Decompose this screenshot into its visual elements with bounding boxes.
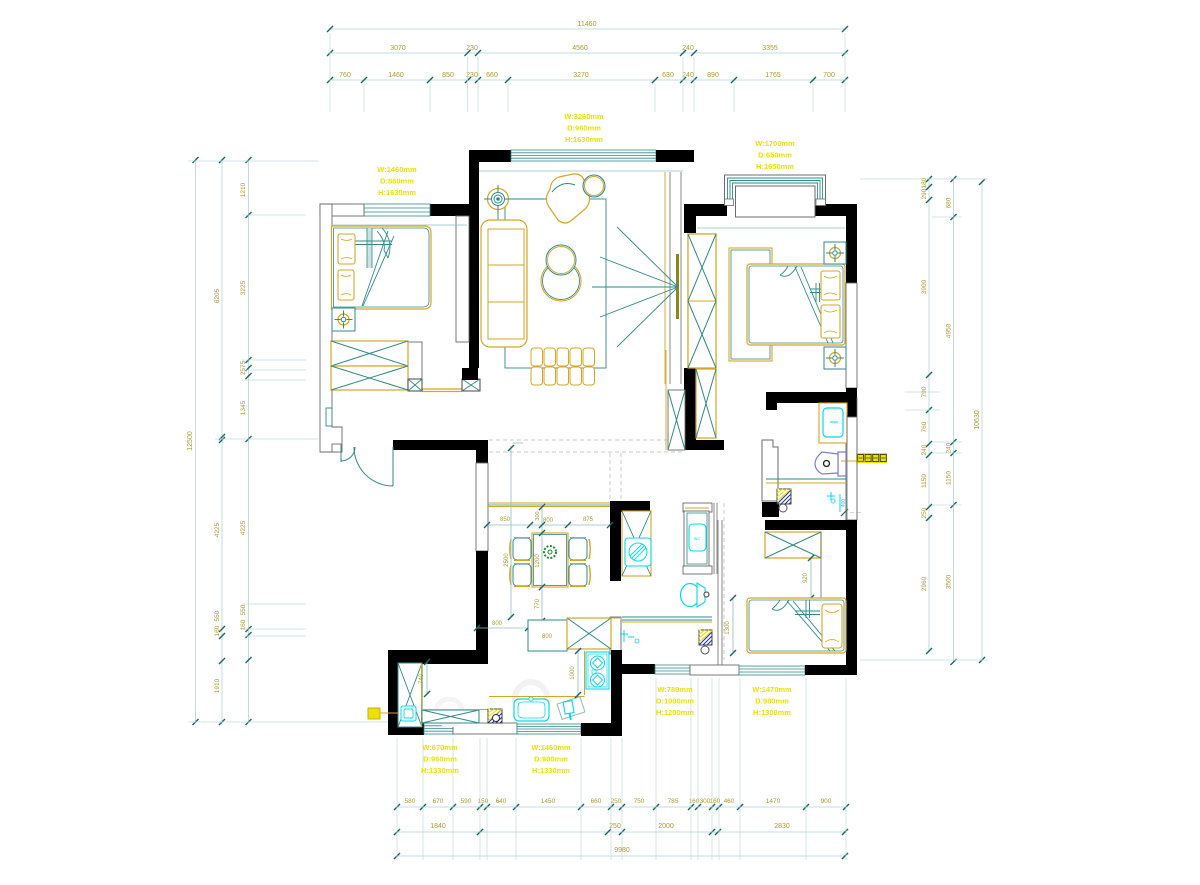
svg-text:H:1200mm: H:1200mm [656, 708, 694, 717]
svg-text:160: 160 [214, 625, 221, 636]
svg-text:630: 630 [662, 72, 674, 79]
svg-text:590: 590 [461, 798, 472, 805]
svg-text:660: 660 [486, 72, 498, 79]
svg-text:D:1000mm: D:1000mm [656, 697, 694, 706]
svg-text:875: 875 [583, 517, 594, 523]
svg-text:3225: 3225 [240, 280, 247, 295]
svg-text:1470: 1470 [766, 798, 781, 805]
svg-text:785: 785 [668, 798, 679, 805]
svg-text:W:670mm: W:670mm [422, 743, 458, 752]
svg-text:4560: 4560 [572, 45, 588, 52]
svg-text:W:1700mm: W:1700mm [755, 139, 795, 148]
svg-text:1460: 1460 [388, 72, 404, 79]
svg-text:W:1460mm: W:1460mm [531, 743, 571, 752]
svg-text:1765: 1765 [765, 72, 781, 79]
svg-text:290: 290 [921, 188, 928, 199]
svg-text:300: 300 [535, 511, 541, 520]
svg-text:770: 770 [535, 598, 541, 609]
svg-text:D:980mm: D:980mm [755, 697, 789, 706]
svg-text:700: 700 [823, 72, 835, 79]
svg-text:W:1460mm: W:1460mm [377, 165, 417, 174]
svg-text:660: 660 [591, 798, 602, 805]
svg-text:10630: 10630 [974, 410, 981, 430]
svg-text:250: 250 [611, 798, 622, 805]
svg-text:1000: 1000 [570, 666, 576, 680]
svg-text:850: 850 [500, 517, 511, 523]
svg-text:240: 240 [946, 442, 953, 453]
svg-text:H:1300mm: H:1300mm [753, 708, 791, 717]
svg-text:1840: 1840 [430, 823, 446, 830]
svg-text:4225: 4225 [214, 522, 221, 537]
svg-text:2500: 2500 [504, 553, 510, 567]
svg-text:1300: 1300 [725, 621, 731, 635]
svg-text:230: 230 [466, 45, 478, 52]
svg-text:W:780mm: W:780mm [657, 685, 693, 694]
svg-text:800: 800 [542, 634, 553, 640]
svg-text:240: 240 [921, 444, 928, 455]
svg-text:4225: 4225 [240, 520, 247, 535]
svg-text:D:960mm: D:960mm [567, 124, 601, 133]
svg-text:3270: 3270 [573, 72, 589, 79]
svg-text:W:1470mm: W:1470mm [752, 685, 792, 694]
svg-text:680: 680 [946, 197, 953, 208]
svg-text:W:3260mm: W:3260mm [564, 112, 604, 121]
svg-text:3355: 3355 [762, 45, 778, 52]
svg-text:400: 400 [841, 499, 847, 508]
svg-text:1210: 1210 [240, 182, 247, 197]
svg-text:230: 230 [466, 72, 478, 79]
svg-text:250: 250 [921, 507, 928, 518]
svg-text:2830: 2830 [774, 823, 790, 830]
svg-text:580: 580 [405, 798, 416, 805]
svg-text:4950: 4950 [946, 323, 953, 338]
svg-text:850: 850 [442, 72, 454, 79]
svg-text:1150: 1150 [921, 474, 928, 488]
svg-text:240: 240 [682, 45, 694, 52]
svg-text:3900: 3900 [921, 279, 928, 294]
svg-text:WC: WC [694, 536, 701, 541]
svg-text:3070: 3070 [390, 45, 406, 52]
svg-text:D:650mm: D:650mm [758, 151, 792, 160]
svg-text:890: 890 [707, 72, 719, 79]
svg-text:D:860mm: D:860mm [380, 177, 414, 186]
svg-text:D:960mm: D:960mm [423, 755, 457, 764]
svg-text:1200: 1200 [535, 554, 541, 568]
svg-text:740: 740 [419, 673, 425, 684]
svg-text:H:1650mm: H:1650mm [756, 162, 794, 171]
svg-text:760: 760 [339, 72, 351, 79]
svg-text:12500: 12500 [187, 431, 194, 451]
svg-text:800: 800 [492, 621, 503, 627]
svg-text:2960: 2960 [921, 576, 928, 591]
svg-text:H:1330mm: H:1330mm [421, 766, 459, 775]
svg-text:920: 920 [803, 572, 809, 583]
svg-text:550: 550 [240, 604, 247, 615]
svg-text:1910: 1910 [214, 678, 221, 693]
svg-text:1450: 1450 [541, 798, 556, 805]
svg-text:6205: 6205 [214, 288, 221, 303]
svg-text:1345: 1345 [240, 400, 247, 415]
svg-text:11460: 11460 [578, 21, 597, 28]
svg-text:460: 460 [724, 798, 735, 805]
svg-text:3500: 3500 [946, 574, 953, 589]
svg-text:670: 670 [433, 798, 444, 805]
svg-text:240: 240 [682, 72, 694, 79]
svg-text:640: 640 [496, 798, 507, 805]
svg-text:2000: 2000 [658, 823, 674, 830]
svg-text:D:900mm: D:900mm [534, 755, 568, 764]
svg-text:2575: 2575 [240, 360, 247, 375]
svg-text:H:1330mm: H:1330mm [532, 766, 570, 775]
svg-text:550: 550 [214, 610, 221, 621]
svg-text:750: 750 [634, 798, 645, 805]
svg-text:H:1630mm: H:1630mm [378, 188, 416, 197]
svg-text:1150: 1150 [946, 471, 953, 485]
svg-text:760: 760 [921, 421, 928, 432]
svg-text:H:1630mm: H:1630mm [565, 135, 603, 144]
svg-text:900: 900 [821, 798, 832, 805]
